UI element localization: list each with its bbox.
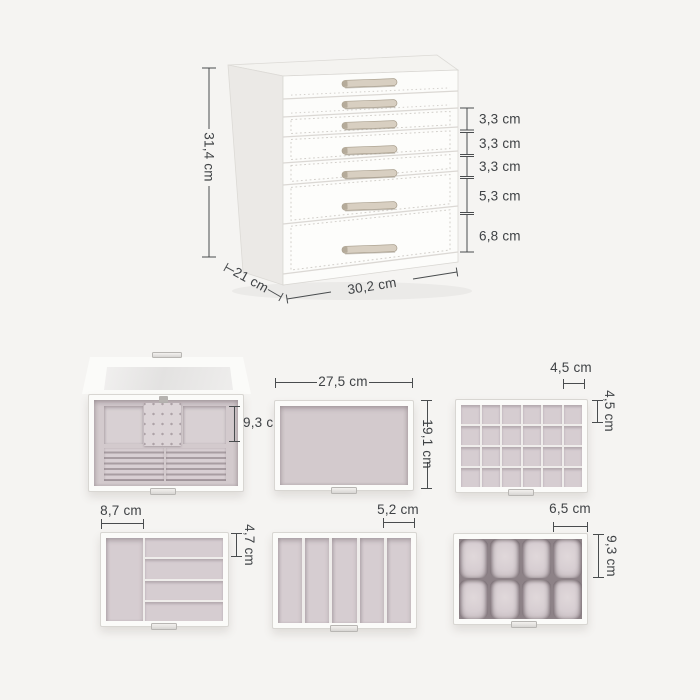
dim-grid-width-tick-left <box>563 379 564 389</box>
watch-drawer <box>453 533 588 625</box>
grid-cell <box>564 447 583 466</box>
watch-pillow <box>459 580 488 619</box>
ring-roll-section-right <box>166 448 226 481</box>
dim-compartment-tick-left <box>101 519 102 529</box>
grid-drawer-handle <box>508 489 534 496</box>
watch-pillow <box>522 539 551 578</box>
drawer-handle-1 <box>342 121 397 131</box>
dim-grid-cell-width-label: 4,5 cm <box>531 360 611 376</box>
grid-cell <box>543 426 562 445</box>
grid-cell <box>502 405 521 424</box>
row-compartment <box>145 538 223 557</box>
dim-drawer5-label: 6,8 cm <box>479 229 521 244</box>
dim-tray-width-tick-left <box>275 378 276 388</box>
dim-compartment-width-label: 8,7 cm <box>81 503 161 519</box>
divided-drawer-layout <box>106 538 223 621</box>
grid-cell <box>564 468 583 487</box>
grid-cell <box>543 468 562 487</box>
dim-row-height-line <box>236 533 237 557</box>
vertical-slot <box>360 538 384 623</box>
grid-cell <box>564 426 583 445</box>
row-compartment <box>145 559 223 578</box>
drawer-handle-2 <box>342 146 397 156</box>
dim-tray-depth-tick-bottom <box>421 488 432 489</box>
dim-drawer4-label: 5,3 cm <box>479 189 521 204</box>
dim-slot-line <box>383 522 415 523</box>
grid-drawer-cells <box>461 405 582 487</box>
grid-cell <box>461 426 480 445</box>
grid-cell <box>482 468 501 487</box>
watch-pillow-area <box>459 539 582 619</box>
grid-cell <box>482 426 501 445</box>
dim-pillow-width-tick-left <box>553 522 554 532</box>
grid-cell <box>502 426 521 445</box>
dim-top-compartment-tick-top <box>229 406 240 407</box>
dim-grid-height-line <box>597 400 598 423</box>
drawer-handle-4 <box>342 202 397 212</box>
grid-cell <box>482 405 501 424</box>
left-compartment <box>104 406 143 444</box>
slot-drawer-slots <box>278 538 411 623</box>
dim-slot-tick-right <box>414 518 415 528</box>
dim-drawer3-label: 3,3 cm <box>479 159 521 174</box>
dim-top-compartment-tick-bottom <box>229 441 240 442</box>
dim-pillow-width-tick-right <box>587 522 588 532</box>
vertical-slot <box>387 538 411 623</box>
grid-cell <box>502 447 521 466</box>
dim-row-height-label: 4,7 cm <box>241 513 257 577</box>
dim-grid-cell-height-label: 4,5 cm <box>601 379 617 443</box>
main-box-illustration: 31,4 cm 3,3 cm 3,3 cm 3,3 cm 5,3 cm 6,8 … <box>0 0 700 340</box>
lid-mirror <box>104 367 233 390</box>
watch-pillow <box>553 580 582 619</box>
watch-pillow <box>553 539 582 578</box>
slot-drawer-handle <box>330 625 358 632</box>
grid-cell <box>461 468 480 487</box>
lid-handle <box>342 79 397 89</box>
watch-pillow <box>490 580 519 619</box>
divided-drawer-handle <box>151 623 177 630</box>
box-left-face <box>228 65 283 285</box>
row-section <box>145 538 223 621</box>
open-box-body <box>88 394 244 492</box>
dim-slot-tick-left <box>383 518 384 528</box>
divided-drawer <box>100 532 229 627</box>
slot-drawer <box>272 532 417 629</box>
earring-hole-panel <box>144 403 181 446</box>
dim-compartment-line <box>101 523 144 524</box>
vertical-slot <box>305 538 329 623</box>
top-section-handle <box>342 100 397 110</box>
grid-cell <box>461 447 480 466</box>
watch-pillow <box>522 580 551 619</box>
right-compartment <box>183 406 226 444</box>
grid-cell <box>461 405 480 424</box>
open-box-lid <box>82 354 251 394</box>
jewelry-box-dimension-diagram: 31,4 cm 3,3 cm 3,3 cm 3,3 cm 5,3 cm 6,8 … <box>0 0 700 700</box>
dim-pillow-height-line <box>598 534 599 578</box>
dim-box-height-label: 31,4 cm <box>202 132 217 181</box>
open-box-handle <box>150 488 176 495</box>
dim-pillow-width-label: 6,5 cm <box>530 501 610 517</box>
dim-tray-width-tick-right <box>412 378 413 388</box>
grid-cell <box>564 405 583 424</box>
grid-cell <box>523 426 542 445</box>
dim-slot-width-label: 5,2 cm <box>358 502 438 518</box>
grid-cell <box>543 447 562 466</box>
dim-pillow-width-line <box>553 526 588 527</box>
empty-drawer-handle <box>331 487 357 494</box>
grid-cell <box>502 468 521 487</box>
dim-tray-width-line-left <box>275 382 317 383</box>
grid-cell <box>523 468 542 487</box>
dim-tray-width-line-right <box>369 382 412 383</box>
row-compartment <box>145 602 223 621</box>
dim-compartment-tick-right <box>143 519 144 529</box>
watch-drawer-handle <box>511 621 537 628</box>
empty-drawer <box>274 400 414 491</box>
dim-drawer2-label: 3,3 cm <box>479 136 521 151</box>
vertical-slot <box>278 538 302 623</box>
watch-pillow <box>490 539 519 578</box>
lid-edge-handle <box>152 352 182 358</box>
drawer-handle-5 <box>342 245 397 255</box>
grid-drawer <box>455 399 588 493</box>
dim-drawer-heights-bracket <box>460 108 474 252</box>
row-compartment <box>145 581 223 600</box>
dim-pillow-height-label: 9,3 cm <box>603 524 619 588</box>
dim-tray-depth-label: 19,1 cm <box>419 412 435 476</box>
ring-roll-section-left <box>104 448 164 481</box>
empty-drawer-lining <box>280 406 408 485</box>
watch-pillow <box>459 539 488 578</box>
grid-cell <box>523 405 542 424</box>
tall-side-compartment <box>106 538 143 621</box>
dim-top-compartment-line <box>234 406 235 442</box>
grid-cell <box>482 447 501 466</box>
grid-cell <box>543 405 562 424</box>
dim-grid-width-tick-right <box>584 379 585 389</box>
dim-grid-width-line <box>563 383 585 384</box>
drawer-handle-3 <box>342 170 397 180</box>
grid-cell <box>523 447 542 466</box>
dim-drawer1-label: 3,3 cm <box>479 112 521 127</box>
vertical-slot <box>332 538 356 623</box>
